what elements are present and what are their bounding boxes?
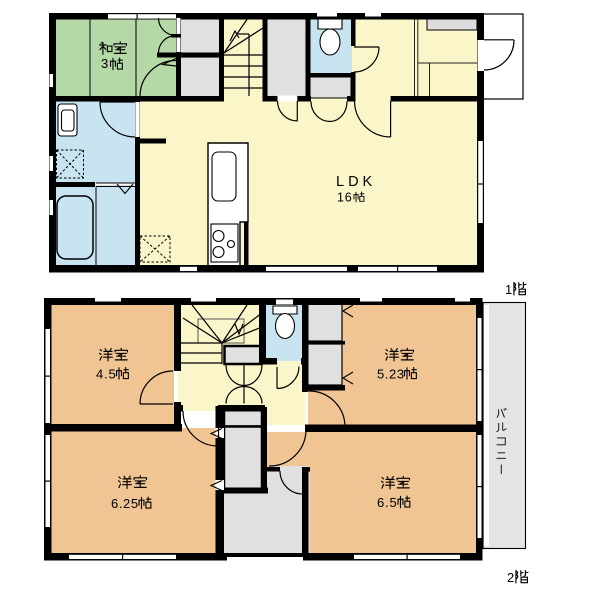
svg-text:6.25: 6.25 <box>111 496 139 511</box>
svg-text:6.5: 6.5 <box>377 495 397 510</box>
svg-text:3: 3 <box>101 56 108 71</box>
svg-text:1: 1 <box>505 282 512 297</box>
svg-text:5.23: 5.23 <box>377 367 405 382</box>
svg-text:LDK: LDK <box>336 174 376 190</box>
svg-text:4.5: 4.5 <box>96 367 116 382</box>
svg-text:16: 16 <box>337 191 353 205</box>
svg-text:2: 2 <box>507 570 514 585</box>
